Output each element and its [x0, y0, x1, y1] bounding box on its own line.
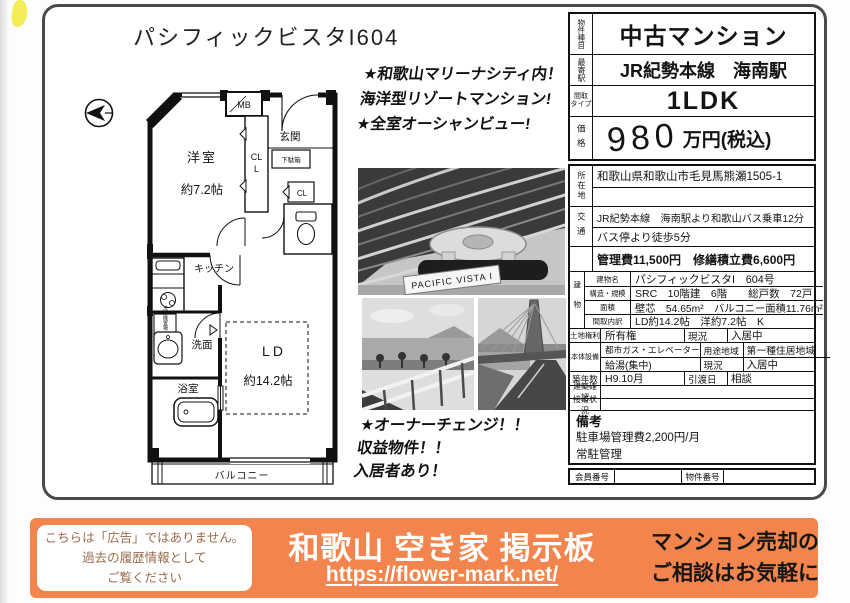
row-road: 接道状況 — [570, 398, 814, 410]
area-value: 壁芯 54.65m² バルコニー面積11.76m² — [631, 301, 823, 314]
address-label: 所在地 — [577, 171, 585, 201]
svg-text:CL: CL — [297, 189, 308, 198]
station-label: 最寄駅 — [577, 58, 585, 82]
equipment-value-2: 給湯(集中) — [601, 358, 700, 371]
land-rights-value: 所有権 — [601, 329, 684, 342]
row-land-rights: 土地権利 所有権 現況 入居中 — [570, 328, 814, 342]
member-no-label: 会員番号 — [570, 470, 615, 483]
callout-resort: 海洋型リゾートマンション! — [358, 87, 560, 112]
area-label: 面積 — [585, 301, 631, 314]
structure-label: 構造・規模 — [585, 287, 631, 300]
callout-oceanview: ★全室オーシャンビュー! — [355, 112, 557, 137]
row-structure: 構造・規模 SRC 10階建 6階 総戸数 72戸 — [585, 286, 823, 300]
building-confirm-value — [601, 386, 814, 398]
remarks-block: 備考 駐車場管理費2,200円/月 常駐管理 — [570, 410, 814, 463]
kitchen-counter — [152, 258, 184, 312]
svg-text:CL: CL — [251, 152, 263, 162]
ld-size-label: 約14.2帖 — [243, 373, 292, 388]
ld-label: LD — [262, 343, 286, 359]
address-value: 和歌山県和歌山市毛見馬熊瀬1505-1 — [593, 166, 814, 187]
banner-notice-box: こちらは「広告」ではありません。 過去の履歴情報として ご覧ください — [37, 525, 252, 591]
cta-line2: ご相談はお気軽に — [628, 558, 842, 589]
svg-text:洗濯機置場: 洗濯機置場 — [162, 305, 168, 332]
spec-numbers-section: 会員番号 物件番号 — [568, 468, 816, 485]
land-rights-label: 土地権利 — [570, 329, 601, 342]
notice-line2: 過去の履歴情報として — [37, 548, 252, 568]
road-label: 接道状況 — [570, 399, 601, 410]
layout-detail-value: LD約14.2帖 洋約7.2帖 K — [631, 315, 823, 328]
age-value: H9.10月 — [601, 372, 684, 385]
notice-line1: こちらは「広告」ではありません。 — [37, 528, 252, 548]
floor-plan: MB CL L 玄関 下駄箱 — [80, 86, 350, 490]
row-address: 所在地 和歌山県和歌山市毛見馬熊瀬1505-1 — [570, 166, 814, 206]
notice-line3: ご覧ください — [37, 568, 252, 588]
property-type-value: 中古マンション — [593, 14, 814, 54]
spec-detail-section: 所在地 和歌山県和歌山市毛見馬熊瀬1505-1 交通 JR紀勢本線 海南駅より和… — [568, 164, 816, 465]
handover-label: 引渡日 — [684, 372, 727, 385]
access-line1: JR紀勢本線 海南駅より和歌山バス乗車12分 — [593, 207, 814, 227]
closet-2: CL — [283, 182, 314, 202]
row-layout-detail: 間取内訳 LD約14.2帖 洋約7.2帖 K — [585, 314, 823, 328]
compass-icon — [86, 100, 113, 127]
row-building-name: 建物名 パシフィックビスタI 604号 — [585, 272, 823, 286]
western-room-size: 約7.2帖 — [181, 182, 223, 197]
layout-detail-label: 間取内訳 — [585, 315, 631, 328]
callouts-top: ★和歌山マリーナシティ内！ 海洋型リゾートマンション! ★全室オーシャンビュー! — [355, 62, 565, 137]
entrance-label: 玄関 — [280, 130, 301, 143]
building-name-value: パシフィックビスタI 604号 — [631, 272, 823, 286]
scan-edge-shadow — [0, 0, 9, 603]
equipment-label: 本体設備 — [570, 343, 601, 371]
bath-door — [218, 386, 223, 410]
address-line2 — [593, 187, 814, 207]
price-unit: 万円(税込) — [683, 125, 772, 152]
row-age: 築年数 H9.10月 引渡日 相談 — [570, 371, 814, 385]
row-area: 面積 壁芯 54.65m² バルコニー面積11.76m² — [585, 300, 823, 314]
page-title: パシフィックビスタI604 — [133, 20, 399, 52]
member-no-value — [615, 470, 682, 483]
callout-marina: ★和歌山マリーナシティ内！ — [362, 62, 564, 87]
yellow-highlight-mark — [10, 0, 28, 28]
washroom-label: 洗面 — [192, 339, 213, 351]
price-number: 980 — [606, 117, 680, 159]
row-equipment-1: 都市ガス・エレベーター 用途地域 第一種住居地域 — [601, 343, 830, 357]
zoning-value: 第一種住居地域 — [743, 343, 830, 357]
meter-box: MB — [226, 92, 262, 116]
svg-text:MB: MB — [237, 100, 251, 110]
balcony-label: バルコニー — [215, 470, 270, 482]
handover-value: 相談 — [727, 372, 814, 385]
zoning-label: 用途地域 — [700, 343, 743, 357]
site-title: 和歌山 空き家 掲示板 — [258, 523, 626, 568]
access-label: 交通 — [577, 212, 586, 241]
flyer-page: パシフィックビスタI604 — [0, 0, 850, 603]
status-label-2: 現況 — [700, 358, 743, 371]
status-value-1: 入居中 — [727, 329, 814, 342]
shoe-box-label: 下駄箱 — [281, 155, 301, 164]
row-price: 価格 980 万円(税込) — [570, 116, 814, 159]
ocean-view-photo — [362, 298, 474, 410]
cta-line1: マンション売却の — [628, 527, 842, 558]
equipment-block: 本体設備 都市ガス・エレベーター 用途地域 第一種住居地域 給湯(集中) 現況 … — [570, 342, 814, 371]
fees-label — [570, 247, 593, 271]
western-room-label: 洋室 — [187, 150, 217, 165]
status-label-1: 現況 — [684, 329, 727, 342]
road-value — [601, 399, 814, 410]
access-line2: バス停より徒歩5分 — [593, 227, 814, 246]
bathtub — [174, 398, 218, 426]
callout-tenant: 入居者あり！ — [352, 460, 524, 483]
price-label: 価格 — [577, 124, 586, 153]
price-value: 980 万円(税込) — [593, 117, 814, 159]
row-fees: 管理費11,500円 修繕積立費6,600円 — [570, 246, 814, 271]
kitchen-label: キッチン — [194, 263, 234, 275]
remarks-line2: 常駐管理 — [576, 447, 814, 464]
site-banner: こちらは「広告」ではありません。 過去の履歴情報として ご覧ください 和歌山 空… — [30, 518, 818, 598]
bridge-photo — [478, 298, 566, 410]
building-label: 建物 — [573, 281, 581, 320]
site-url-link[interactable]: https://flower-mark.net/ — [258, 563, 626, 587]
status-value-2: 入居中 — [743, 358, 830, 371]
property-no-label: 物件番号 — [682, 470, 724, 483]
callouts-bottom: ★オーナーチェンジ！！ 収益物件！！ 入居者あり！ — [352, 414, 531, 483]
station-value: JR紀勢本線 海南駅 — [593, 55, 814, 85]
layout-type-label: 間取 タイプ — [570, 86, 593, 116]
row-property-type: 物件種目 中古マンション — [570, 14, 814, 54]
property-no-value — [724, 470, 814, 483]
property-type-label: 物件種目 — [577, 19, 585, 49]
remarks-label: 備考 — [576, 413, 814, 430]
row-layout-type: 間取 タイプ 1LDK — [570, 85, 814, 116]
fees-value: 管理費11,500円 修繕積立費6,600円 — [593, 247, 814, 271]
row-access: 交通 JR紀勢本線 海南駅より和歌山バス乗車12分 バス停より徒歩5分 — [570, 206, 814, 246]
spec-head-section: 物件種目 中古マンション 最寄駅 JR紀勢本線 海南駅 間取 タイプ 1LDK … — [568, 12, 816, 161]
callout-owner-change: ★オーナーチェンジ！！ — [359, 414, 531, 437]
building-name-label: 建物名 — [585, 272, 631, 286]
property-spec-table: 物件種目 中古マンション 最寄駅 JR紀勢本線 海南駅 間取 タイプ 1LDK … — [568, 12, 816, 485]
structure-value: SRC 10階建 6階 総戸数 72戸 — [631, 287, 823, 300]
equipment-value-1: 都市ガス・エレベーター — [601, 343, 700, 357]
callout-income-property: 収益物件！！ — [355, 437, 527, 460]
remarks-line1: 駐車場管理費2,200円/月 — [576, 430, 814, 447]
row-equipment-2: 給湯(集中) 現況 入居中 — [601, 357, 830, 371]
row-station: 最寄駅 JR紀勢本線 海南駅 — [570, 54, 814, 85]
layout-type-value: 1LDK — [593, 86, 814, 116]
banner-cta: マンション売却の ご相談はお気軽に — [628, 527, 842, 589]
building-block: 建物 建物名 パシフィックビスタI 604号 構造・規模 SRC 10階建 6階… — [570, 271, 814, 328]
bathroom-label: 浴室 — [178, 382, 199, 395]
building-photo: PACIFIC VISTA I — [358, 168, 565, 295]
row-building-confirm: 建築確認 — [570, 385, 814, 398]
svg-text:L: L — [254, 164, 259, 174]
